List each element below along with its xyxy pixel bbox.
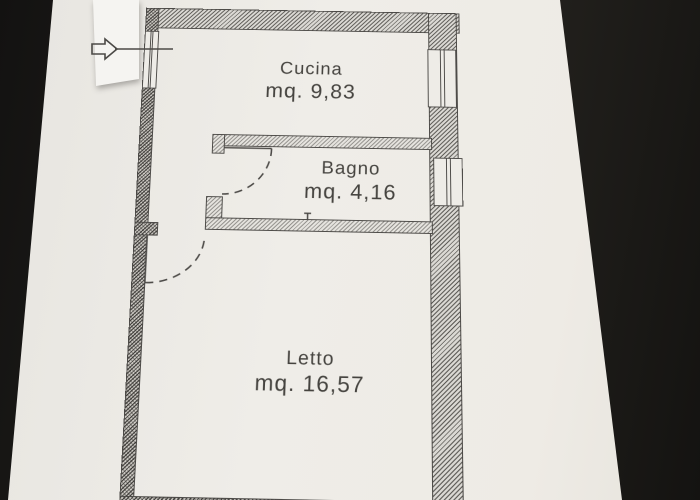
bagno-door-arc bbox=[222, 148, 272, 195]
photo-background: Cucina mq. 9,83 Bagno mq. 4,16 Letto mq.… bbox=[0, 0, 700, 500]
entrance-arrow-icon bbox=[92, 39, 117, 59]
room-area: mq. 4,16 bbox=[271, 178, 430, 206]
bagno-fixture-tick bbox=[304, 213, 311, 220]
entrance-annotation bbox=[90, 36, 180, 64]
room-area: mq. 16,57 bbox=[206, 369, 413, 400]
room-area: mq. 9,83 bbox=[233, 78, 388, 105]
floor-plan: Cucina mq. 9,83 Bagno mq. 4,16 Letto mq.… bbox=[119, 8, 468, 500]
bagno-door-leaf bbox=[225, 148, 272, 149]
letto-door-leaf bbox=[145, 235, 147, 282]
room-label-bagno: Bagno mq. 4,16 bbox=[271, 157, 430, 206]
room-label-letto: Letto mq. 16,57 bbox=[206, 345, 413, 399]
letto-door-arc bbox=[145, 235, 204, 283]
room-name: Cucina bbox=[234, 57, 389, 81]
room-name: Bagno bbox=[272, 157, 430, 182]
room-label-cucina: Cucina mq. 9,83 bbox=[233, 57, 389, 104]
